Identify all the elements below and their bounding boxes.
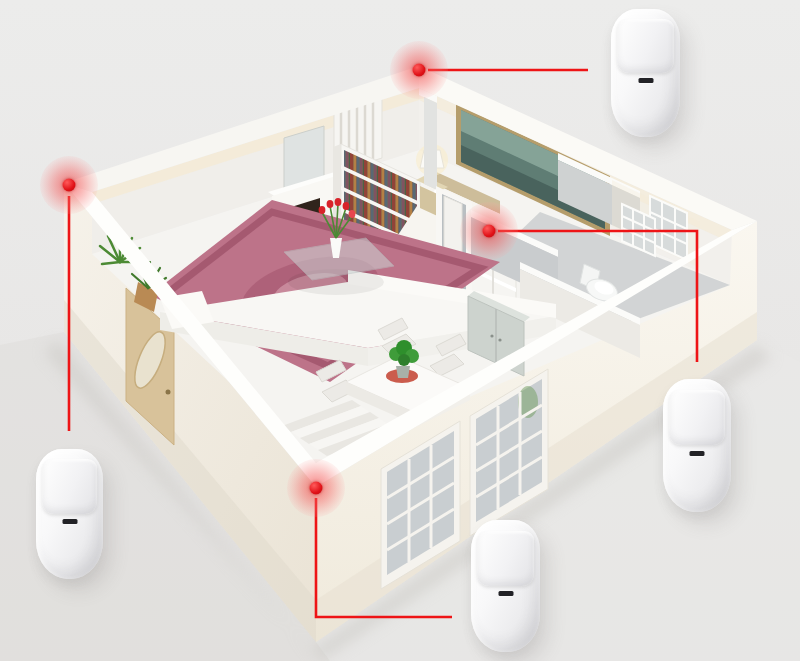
device-layer [0,0,800,661]
pir-sensor-bottom [471,520,540,652]
pir-sensor-top-right [611,9,680,137]
sensor-ir-slot [690,451,705,456]
pir-sensor-left [36,449,103,579]
sensor-lens-window [42,459,97,514]
sensor-lens-window [669,390,725,446]
sensor-ir-slot [498,591,513,596]
scene [0,0,800,661]
marker-dot [483,225,496,238]
sensor-ir-slot [62,519,77,524]
marker-dot [310,482,323,495]
marker-dot [413,64,426,77]
sensor-lens-window [617,19,674,73]
sensor-lens-window [477,531,534,586]
sensor-ir-slot [638,78,653,83]
pir-sensor-right [663,379,731,512]
marker-dot [63,179,76,192]
